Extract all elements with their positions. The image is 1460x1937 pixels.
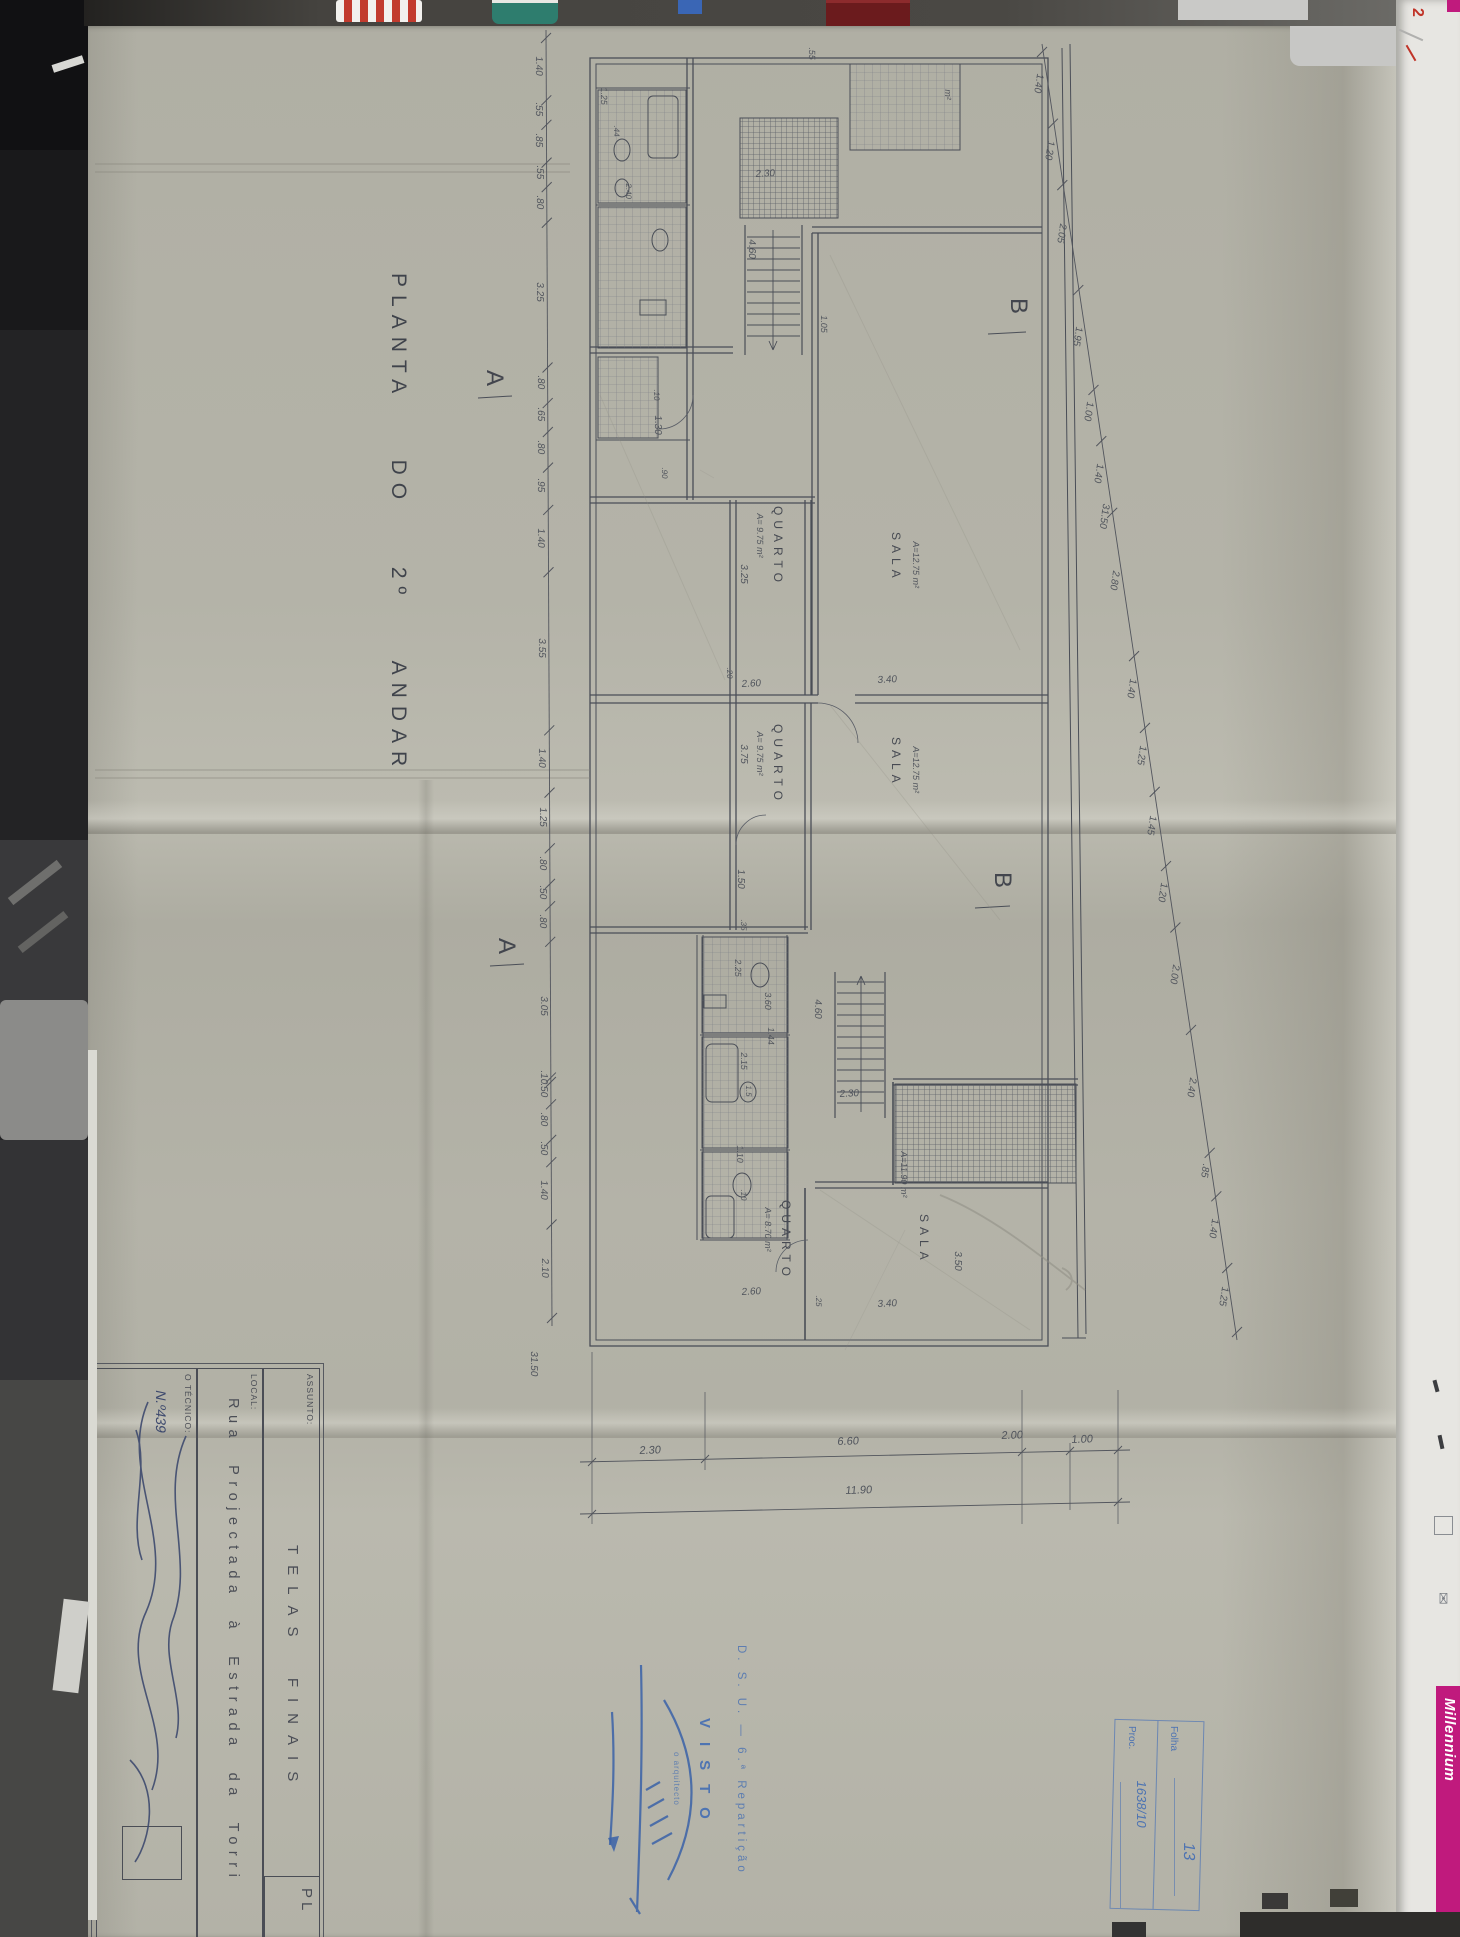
photo-of-floor-plan: BBAAQUARTOA= 9.75 m²SALAA=12.75 m²QUARTO… [0,0,1460,1937]
photo-dark-square [1262,1893,1288,1909]
millennium-brand-label: Millennium [1441,1698,1458,1781]
photo-dark-square [1112,1922,1146,1937]
technician-signature [0,0,1460,1937]
envelope-icon: ✉ [1434,1592,1452,1605]
page-number-annotation: 2 [1408,8,1426,17]
photo-dark-square [1330,1889,1358,1907]
desk-object-light [1178,0,1308,20]
photo-left-margin [0,0,88,1937]
desk-object-blue [678,0,702,14]
desk-object-darkred [826,0,910,26]
checkbox-glyph [1434,1516,1453,1535]
desk-object-teal [492,0,558,24]
millennium-brand-band: Millennium [1436,1686,1460,1937]
photo-bottom-right-dark [1240,1912,1460,1937]
desk-edge-strip [84,0,1396,26]
desk-object-striped [336,0,422,22]
millennium-brand-sliver [1447,0,1460,12]
backing-letterhead-strip [1396,0,1460,1937]
